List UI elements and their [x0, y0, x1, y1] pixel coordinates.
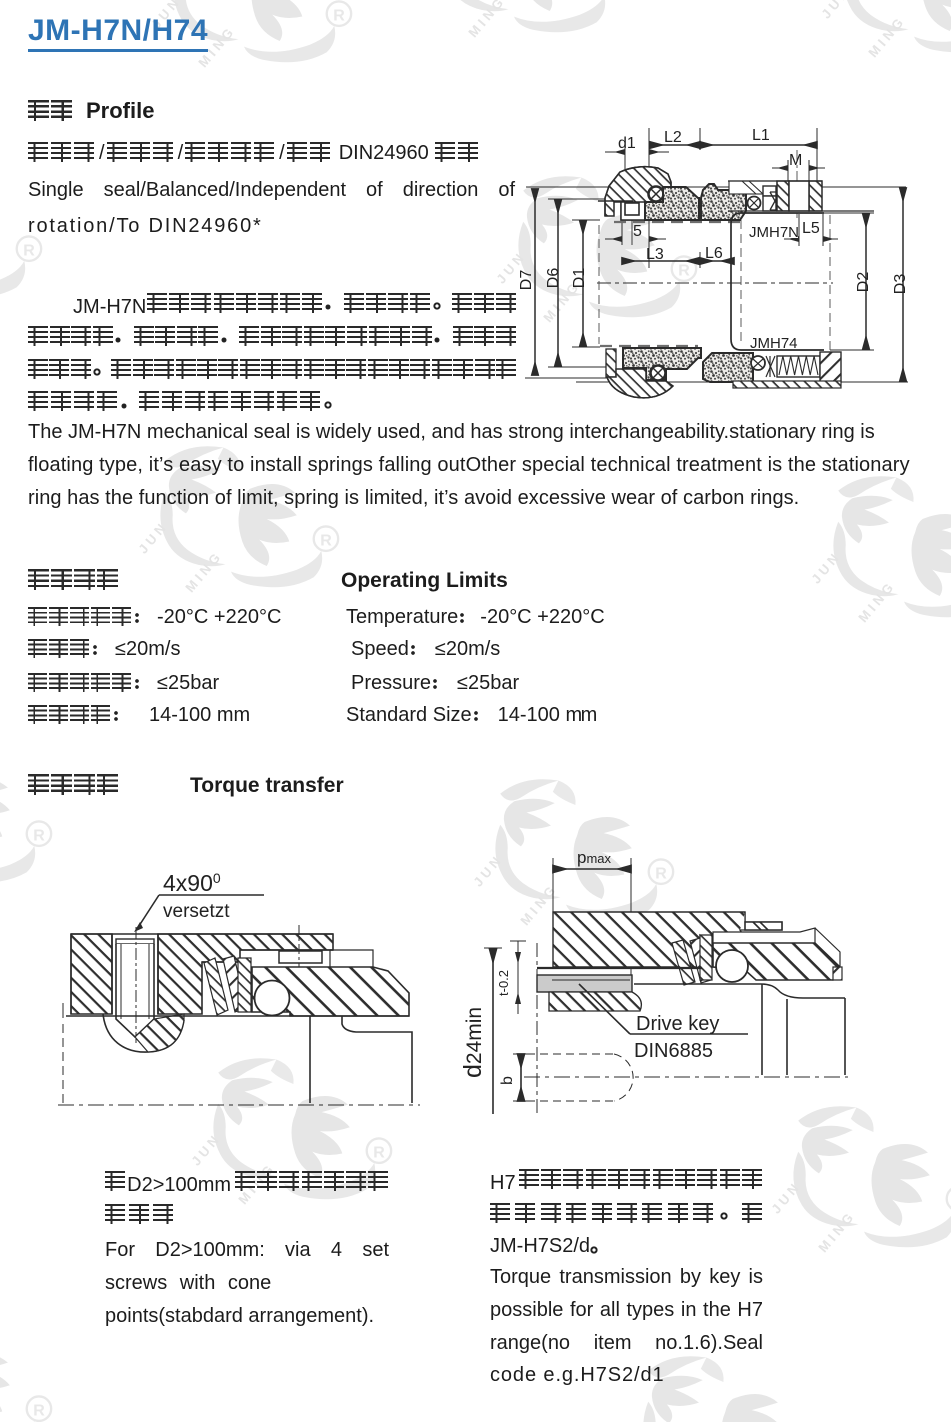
svg-text:D1: D1	[571, 268, 588, 289]
svg-text:5: 5	[633, 223, 642, 240]
svg-text:D2: D2	[855, 272, 872, 293]
svg-text:L6: L6	[705, 245, 723, 262]
svg-text:JMH74: JMH74	[750, 335, 798, 352]
svg-text:D7: D7	[518, 270, 535, 291]
svg-text:d1: d1	[618, 135, 636, 152]
svg-text:pmax: pmax	[577, 848, 612, 867]
svg-text:L1: L1	[752, 127, 770, 144]
svg-text:DIN6885: DIN6885	[634, 1040, 713, 1062]
svg-text:L2: L2	[664, 129, 682, 146]
svg-text:t-0.2: t-0.2	[496, 970, 511, 996]
svg-text:4x900: 4x900	[163, 870, 221, 896]
svg-text:b: b	[499, 1076, 516, 1085]
svg-text:L5: L5	[802, 220, 820, 237]
svg-text:Drive key: Drive key	[636, 1013, 719, 1035]
svg-text:D3: D3	[892, 274, 909, 295]
svg-text:d24min: d24min	[459, 1007, 487, 1078]
svg-text:L3: L3	[646, 246, 664, 263]
svg-text:M: M	[789, 152, 802, 169]
svg-text:D6: D6	[545, 268, 562, 289]
svg-text:JMH7N: JMH7N	[749, 224, 799, 241]
svg-text:versetzt: versetzt	[163, 901, 230, 922]
